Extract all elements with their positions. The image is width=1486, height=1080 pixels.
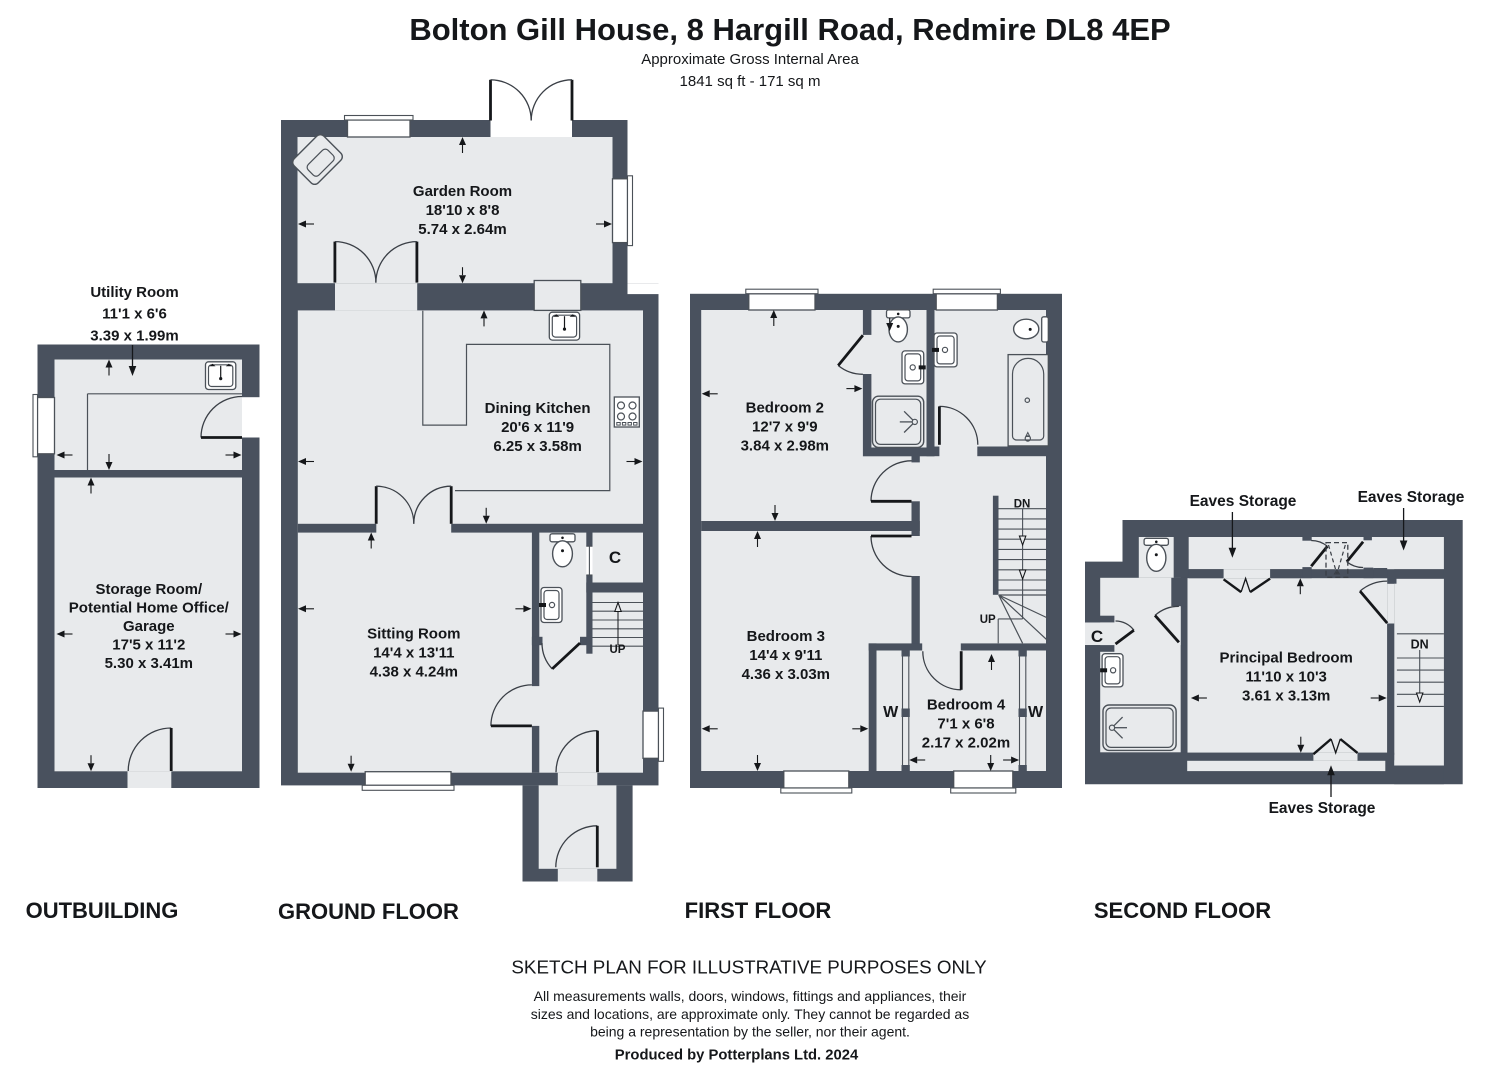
- svg-text:GROUND FLOOR: GROUND FLOOR: [278, 899, 459, 924]
- svg-text:11'1 x 6'6: 11'1 x 6'6: [102, 306, 167, 323]
- svg-text:W: W: [883, 704, 899, 721]
- svg-text:20'6 x 11'9: 20'6 x 11'9: [501, 419, 574, 436]
- svg-text:Bolton Gill House, 8 Hargill R: Bolton Gill House, 8 Hargill Road, Redmi…: [409, 12, 1170, 47]
- svg-text:OUTBUILDING: OUTBUILDING: [26, 898, 179, 923]
- svg-text:5.74 x 2.64m: 5.74 x 2.64m: [418, 221, 506, 238]
- svg-text:11'10 x 10'3: 11'10 x 10'3: [1246, 669, 1327, 686]
- svg-text:3.39 x 1.99m: 3.39 x 1.99m: [90, 328, 178, 345]
- svg-text:Approximate Gross Internal Are: Approximate Gross Internal Area: [641, 51, 859, 68]
- svg-text:Sitting Room: Sitting Room: [367, 626, 460, 643]
- svg-text:18'10 x 8'8: 18'10 x 8'8: [426, 202, 500, 219]
- svg-text:Eaves Storage: Eaves Storage: [1358, 489, 1465, 506]
- svg-text:Bedroom 3: Bedroom 3: [747, 628, 825, 645]
- svg-text:SECOND FLOOR: SECOND FLOOR: [1094, 898, 1271, 923]
- svg-text:4.38 x 4.24m: 4.38 x 4.24m: [370, 664, 458, 681]
- svg-text:Potential Home Office/: Potential Home Office/: [69, 600, 230, 617]
- svg-text:DN: DN: [1014, 499, 1031, 511]
- svg-text:Principal Bedroom: Principal Bedroom: [1220, 650, 1353, 667]
- svg-text:5.30 x 3.41m: 5.30 x 3.41m: [105, 655, 193, 672]
- svg-text:12'7 x 9'9: 12'7 x 9'9: [752, 418, 818, 435]
- svg-text:6.25 x 3.58m: 6.25 x 3.58m: [493, 438, 581, 455]
- svg-text:Eaves Storage: Eaves Storage: [1269, 800, 1376, 817]
- svg-text:Eaves Storage: Eaves Storage: [1190, 493, 1297, 510]
- svg-text:SKETCH PLAN FOR ILLUSTRATIVE P: SKETCH PLAN FOR ILLUSTRATIVE PURPOSES ON…: [511, 957, 987, 978]
- svg-text:UP: UP: [610, 644, 626, 656]
- svg-text:17'5 x 11'2: 17'5 x 11'2: [112, 637, 185, 654]
- svg-text:Storage Room/: Storage Room/: [95, 581, 203, 598]
- svg-text:C: C: [1091, 627, 1103, 646]
- svg-text:1841 sq ft - 171 sq m: 1841 sq ft - 171 sq m: [680, 73, 821, 90]
- svg-text:Garden Room: Garden Room: [413, 183, 512, 200]
- svg-text:4.36 x 3.03m: 4.36 x 3.03m: [742, 666, 830, 683]
- svg-text:UP: UP: [980, 614, 996, 626]
- svg-text:Produced by Potterplans Ltd. 2: Produced by Potterplans Ltd. 2024: [615, 1048, 859, 1064]
- svg-text:DN: DN: [1411, 638, 1429, 652]
- svg-text:2.17 x 2.02m: 2.17 x 2.02m: [922, 735, 1010, 752]
- svg-text:3.61 x 3.13m: 3.61 x 3.13m: [1242, 688, 1330, 705]
- svg-text:being a representation by the: being a representation by the seller, no…: [590, 1023, 910, 1039]
- svg-text:Garage: Garage: [123, 618, 175, 635]
- svg-text:Bedroom 4: Bedroom 4: [927, 697, 1006, 714]
- svg-text:All measurements walls, doors,: All measurements walls, doors, windows, …: [534, 988, 967, 1004]
- svg-text:sizes and locations, are appro: sizes and locations, are approximate onl…: [531, 1006, 969, 1022]
- svg-text:C: C: [609, 548, 621, 567]
- svg-text:14'4 x 9'11: 14'4 x 9'11: [749, 647, 822, 664]
- svg-text:FIRST FLOOR: FIRST FLOOR: [685, 898, 832, 923]
- svg-text:Utility Room: Utility Room: [90, 284, 178, 301]
- svg-text:14'4 x 13'11: 14'4 x 13'11: [373, 645, 454, 662]
- svg-text:W: W: [1028, 704, 1044, 721]
- svg-text:Bedroom 2: Bedroom 2: [746, 399, 824, 416]
- svg-text:Dining Kitchen: Dining Kitchen: [485, 400, 591, 417]
- svg-text:3.84 x 2.98m: 3.84 x 2.98m: [741, 438, 829, 455]
- svg-text:7'1 x 6'8: 7'1 x 6'8: [937, 716, 994, 733]
